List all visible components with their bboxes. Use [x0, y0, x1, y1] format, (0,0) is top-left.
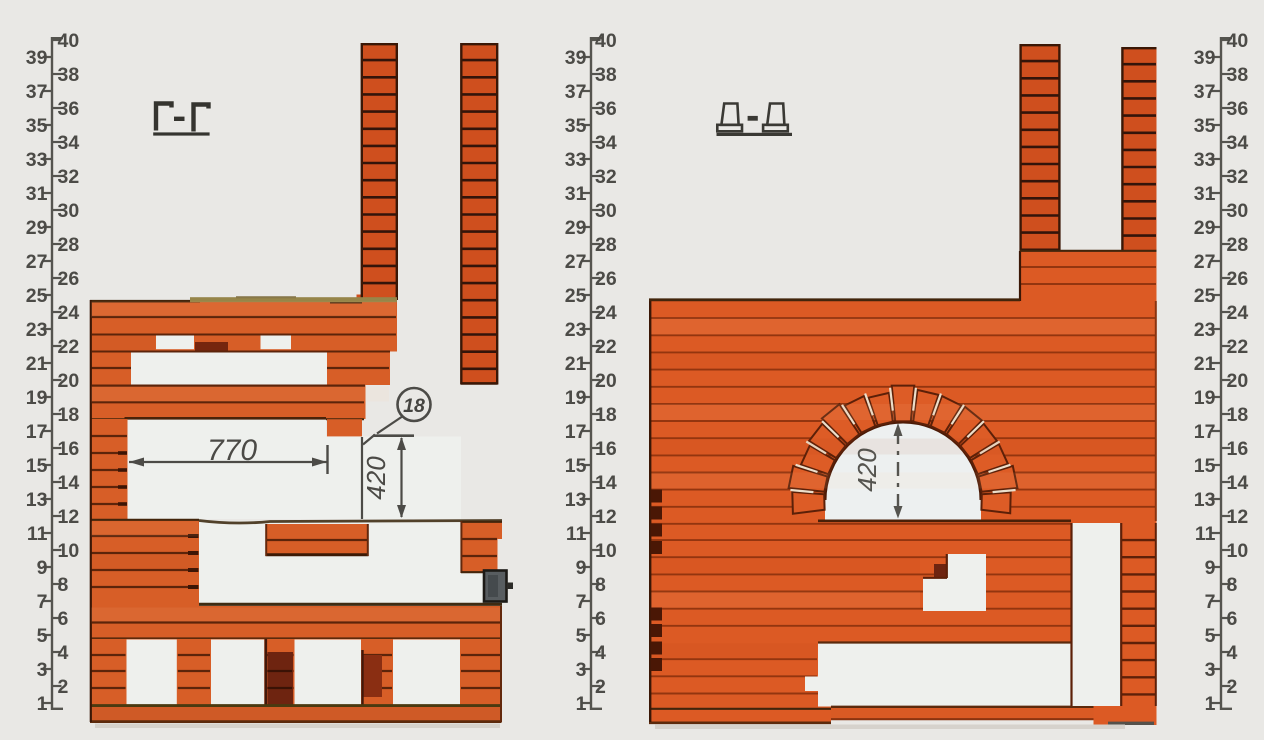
svg-text:39: 39 [26, 47, 48, 69]
svg-text:38: 38 [58, 64, 80, 86]
svg-text:25: 25 [26, 285, 48, 307]
svg-text:40: 40 [1227, 30, 1249, 52]
svg-text:5: 5 [37, 625, 48, 647]
svg-text:21: 21 [26, 353, 48, 375]
svg-text:23: 23 [26, 319, 48, 341]
svg-text:22: 22 [595, 336, 617, 358]
svg-text:17: 17 [26, 421, 48, 443]
svg-text:14: 14 [58, 472, 80, 494]
svg-text:28: 28 [58, 234, 80, 256]
svg-text:420: 420 [852, 448, 882, 492]
svg-text:4: 4 [1227, 642, 1238, 664]
svg-text:3: 3 [1205, 659, 1216, 681]
svg-text:13: 13 [26, 489, 48, 511]
svg-text:28: 28 [595, 234, 617, 256]
svg-text:5: 5 [1205, 625, 1216, 647]
svg-text:12: 12 [1227, 506, 1249, 528]
svg-text:21: 21 [1194, 353, 1216, 375]
svg-text:26: 26 [1227, 268, 1249, 290]
svg-text:7: 7 [1205, 591, 1216, 613]
svg-text:22: 22 [1227, 336, 1249, 358]
svg-text:30: 30 [58, 200, 80, 222]
svg-text:24: 24 [1227, 302, 1249, 324]
svg-text:17: 17 [1194, 421, 1216, 443]
svg-text:36: 36 [595, 98, 617, 120]
svg-text:39: 39 [565, 47, 587, 69]
svg-text:12: 12 [595, 506, 617, 528]
svg-text:30: 30 [1227, 200, 1249, 222]
svg-text:36: 36 [1227, 98, 1249, 120]
svg-text:11: 11 [27, 523, 48, 545]
svg-text:31: 31 [26, 183, 48, 205]
svg-text:37: 37 [565, 81, 587, 103]
svg-text:27: 27 [565, 251, 587, 273]
svg-text:12: 12 [58, 506, 80, 528]
svg-text:7: 7 [37, 591, 48, 613]
svg-text:9: 9 [37, 557, 48, 579]
svg-text:26: 26 [58, 268, 80, 290]
svg-text:31: 31 [565, 183, 587, 205]
svg-text:16: 16 [58, 438, 80, 460]
svg-text:31: 31 [1194, 183, 1216, 205]
svg-text:38: 38 [1227, 64, 1249, 86]
svg-text:20: 20 [595, 370, 617, 392]
svg-text:1: 1 [576, 693, 587, 715]
svg-text:21: 21 [565, 353, 587, 375]
svg-text:23: 23 [1194, 319, 1216, 341]
svg-text:37: 37 [26, 81, 48, 103]
svg-text:14: 14 [595, 472, 617, 494]
svg-text:13: 13 [565, 489, 587, 511]
svg-text:5: 5 [576, 625, 587, 647]
svg-text:19: 19 [26, 387, 48, 409]
svg-text:18: 18 [58, 404, 80, 426]
svg-text:2: 2 [58, 676, 69, 698]
svg-text:26: 26 [595, 268, 617, 290]
svg-text:1: 1 [37, 693, 48, 715]
svg-text:7: 7 [576, 591, 587, 613]
svg-text:34: 34 [58, 132, 80, 154]
svg-text:35: 35 [565, 115, 587, 137]
svg-text:40: 40 [58, 30, 80, 52]
svg-text:40: 40 [595, 30, 617, 52]
svg-text:14: 14 [1227, 472, 1249, 494]
svg-text:6: 6 [1227, 608, 1238, 630]
svg-text:32: 32 [595, 166, 617, 188]
svg-text:18: 18 [403, 395, 425, 417]
svg-text:6: 6 [58, 608, 69, 630]
svg-text:8: 8 [1227, 574, 1238, 596]
svg-text:3: 3 [37, 659, 48, 681]
svg-text:4: 4 [595, 642, 606, 664]
svg-text:18: 18 [595, 404, 617, 426]
svg-text:770: 770 [207, 434, 257, 467]
svg-text:8: 8 [595, 574, 606, 596]
svg-text:38: 38 [595, 64, 617, 86]
svg-text:10: 10 [1227, 540, 1249, 562]
svg-text:33: 33 [565, 149, 587, 171]
svg-text:32: 32 [1227, 166, 1249, 188]
svg-text:30: 30 [595, 200, 617, 222]
svg-text:36: 36 [58, 98, 80, 120]
svg-text:29: 29 [1194, 217, 1216, 239]
svg-text:29: 29 [565, 217, 587, 239]
svg-text:16: 16 [595, 438, 617, 460]
svg-text:10: 10 [58, 540, 80, 562]
svg-text:24: 24 [595, 302, 617, 324]
svg-text:6: 6 [595, 608, 606, 630]
svg-text:28: 28 [1227, 234, 1249, 256]
svg-text:4: 4 [58, 642, 69, 664]
svg-text:27: 27 [1194, 251, 1216, 273]
svg-text:16: 16 [1227, 438, 1249, 460]
svg-text:10: 10 [595, 540, 617, 562]
svg-text:34: 34 [595, 132, 617, 154]
svg-text:33: 33 [1194, 149, 1216, 171]
svg-text:15: 15 [1194, 455, 1216, 477]
svg-text:29: 29 [26, 217, 48, 239]
svg-text:20: 20 [1227, 370, 1249, 392]
svg-text:9: 9 [1205, 557, 1216, 579]
svg-text:2: 2 [595, 676, 606, 698]
svg-text:39: 39 [1194, 47, 1216, 69]
svg-text:2: 2 [1227, 676, 1238, 698]
svg-text:8: 8 [58, 574, 69, 596]
svg-text:20: 20 [58, 370, 80, 392]
svg-text:15: 15 [26, 455, 48, 477]
svg-text:17: 17 [565, 421, 587, 443]
svg-text:1: 1 [1205, 693, 1216, 715]
svg-text:23: 23 [565, 319, 587, 341]
svg-text:22: 22 [58, 336, 80, 358]
svg-text:420: 420 [361, 456, 391, 500]
svg-text:25: 25 [1194, 285, 1216, 307]
svg-text:19: 19 [565, 387, 587, 409]
svg-text:37: 37 [1194, 81, 1216, 103]
svg-text:11: 11 [1195, 523, 1216, 545]
svg-text:15: 15 [565, 455, 587, 477]
svg-text:3: 3 [576, 659, 587, 681]
svg-text:25: 25 [565, 285, 587, 307]
svg-text:11: 11 [566, 523, 587, 545]
svg-text:27: 27 [26, 251, 48, 273]
svg-text:35: 35 [26, 115, 48, 137]
svg-text:13: 13 [1194, 489, 1216, 511]
svg-text:33: 33 [26, 149, 48, 171]
svg-text:9: 9 [576, 557, 587, 579]
svg-text:35: 35 [1194, 115, 1216, 137]
svg-text:18: 18 [1227, 404, 1249, 426]
svg-text:34: 34 [1227, 132, 1249, 154]
svg-text:32: 32 [58, 166, 80, 188]
svg-text:19: 19 [1194, 387, 1216, 409]
svg-text:24: 24 [58, 302, 80, 324]
